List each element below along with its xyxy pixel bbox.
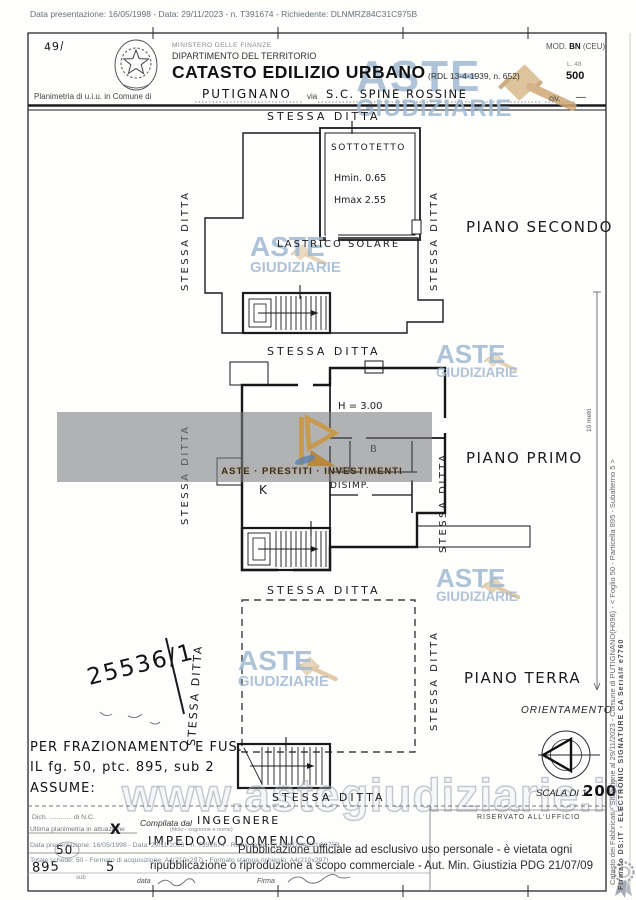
plan-secondo (205, 121, 443, 333)
document-title: CATASTO EDILIZIO URBANO (172, 62, 426, 83)
civ-value: — (576, 92, 586, 103)
footer-legal-notice: Pubblicazione ufficiale ad esclusivo uso… (238, 844, 572, 856)
via-label: via (307, 92, 317, 101)
watermark-text: GIUDIZIARIE (436, 591, 518, 604)
mod-line: MOD. BN (CEU) (546, 42, 605, 51)
watermark-banner: ASTE · PRESTITI · INVESTIMENTI (57, 412, 432, 482)
check-mark-handwritten: X (110, 822, 122, 838)
piano-terra-label: PIANO TERRA (464, 669, 581, 687)
height-note: H = 3.00 (338, 401, 383, 412)
piano-secondo-label: PIANO SECONDO (466, 218, 613, 236)
scala-label: SCALA DI 1: (536, 788, 590, 799)
stessa-ditta-label: STESSA DITTA (438, 458, 449, 553)
watermark-aste-giudiziarie: ASTE GIUDIZIARIE (436, 566, 518, 604)
stessa-ditta-label: STESSA DITTA (267, 584, 380, 597)
planimetria-label: Planimetria di u.i.u. in Comune di (34, 92, 151, 101)
italy-emblem-icon (115, 40, 157, 90)
mod-label: MOD. (546, 42, 567, 51)
document-title-ref: (RDL 13-4-1939, n. 652) (428, 71, 520, 81)
banner-logo-icon (295, 414, 341, 470)
room-sottotetto-label: SOTTOTETTO (331, 143, 406, 153)
compilata-title-handwritten: INGEGNERE (197, 814, 280, 827)
sub-label: sub (76, 875, 86, 881)
riservato-ufficio-label: RISERVATO ALL'UFFICIO (477, 814, 581, 821)
disimpegno-label: DISIMP. (330, 481, 370, 491)
watermark-text: GIUDIZIARIE (436, 367, 518, 380)
lastrico-solare-label: LASTRICO SOLARE (277, 239, 400, 250)
stessa-ditta-label: STESSA DITTA (267, 345, 380, 358)
department-line: DIPARTIMENTO DEL TERRITORIO (172, 51, 316, 61)
banner-watermark-text: ASTE · PRESTITI · INVESTIMENTI (217, 466, 407, 477)
orientamento-label: ORIENTAMENTO (521, 705, 613, 716)
plan-terra (238, 600, 415, 788)
stamp-value: 500 (566, 70, 584, 82)
hmax-note: Hmax 2.55 (334, 195, 386, 206)
watermark-aste-giudiziarie: ASTE GIUDIZIARIE (238, 648, 329, 689)
compilata-note: (titolo - cognome e nome) (170, 827, 233, 833)
hmin-note: Hmin. 0.65 (334, 173, 386, 184)
annotation-line: ASSUME: (30, 781, 96, 796)
via-value: S.C. SPINE ROSSINE (326, 87, 467, 101)
stessa-ditta-label: STESSA DITTA (180, 196, 191, 291)
stamp-small: L. 48 (567, 61, 581, 68)
watermark-aste-giudiziarie: ASTE GIUDIZIARIE (436, 342, 518, 380)
annotation-line: PER FRAZIONAMENTO E FUS. (30, 740, 243, 755)
stessa-ditta-label: STESSA DITTA (267, 110, 380, 123)
scale-bar-label: 10 metri (586, 396, 593, 432)
annotation-line: IL fg. 50, ptc. 895, sub 2 (30, 760, 215, 775)
watermark-text: GIUDIZIARIE (238, 675, 329, 689)
corner-handwritten-note: 49/ (43, 39, 65, 54)
stessa-ditta-label: STESSA DITTA (429, 196, 440, 291)
civ-label: civ. (549, 94, 560, 103)
stessa-ditta-label: STESSA DITTA (429, 636, 440, 731)
header-rules (28, 102, 606, 110)
data-field-label: data (137, 878, 151, 885)
room-k-label: K (259, 483, 267, 497)
comune-value: PUTIGNANO (202, 87, 292, 101)
nc-declaration-line: Dich. ............ di N.C. (32, 814, 95, 821)
footer-legal-notice: ripubblicazione o riproduzione a scopo c… (150, 860, 593, 872)
piano-primo-label: PIANO PRIMO (466, 449, 583, 467)
margin-catasto-metadata: Catasto dei Fabbricati - Situazione al 2… (608, 330, 617, 885)
ministry-line: MINISTERO DELLE FINANZE (172, 42, 272, 49)
watermark-text: GIUDIZIARIE (250, 261, 341, 275)
mod-value: BN (569, 42, 581, 51)
firma-field-label: Firma (257, 878, 275, 885)
cadastral-document-page: Data presentazione: 16/05/1998 - Data: 2… (0, 0, 636, 900)
stessa-ditta-label: STESSA DITTA (272, 791, 385, 804)
mod-note: (CEU) (583, 42, 605, 51)
margin-signature-metadata: Firmato DS:IT - ELECTRONIC SIGNATURE CA … (618, 420, 625, 890)
watermark-text: ASTE (238, 645, 313, 676)
scale-bar (593, 292, 601, 690)
